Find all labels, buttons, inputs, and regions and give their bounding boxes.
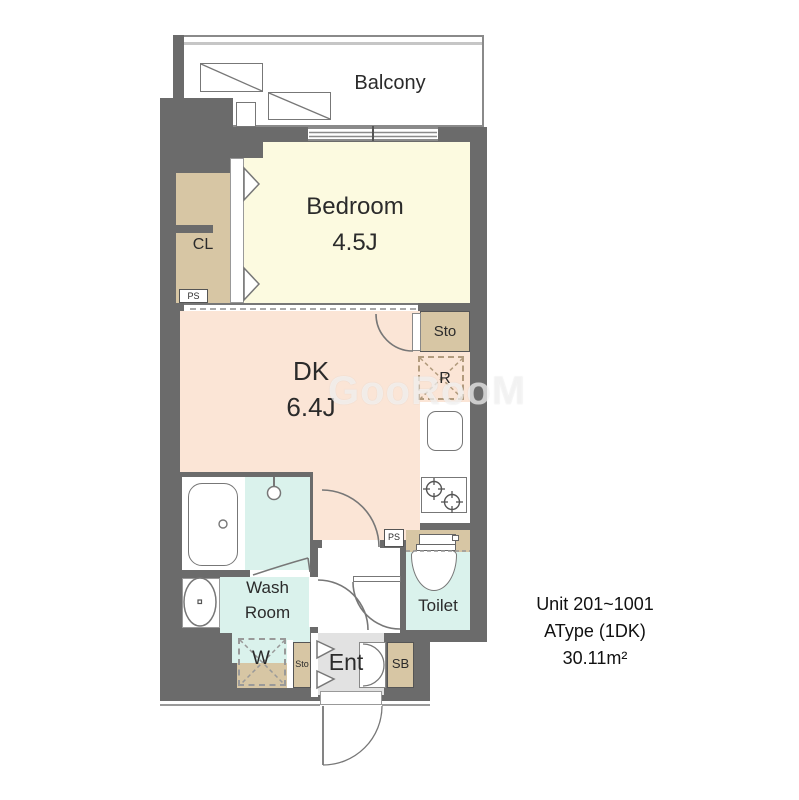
ac-unit-2 [268, 92, 331, 120]
balcony-left-wall [173, 35, 184, 98]
dk-door-opening [322, 540, 380, 548]
storage-lower-label: Sto [291, 659, 313, 669]
bath-door-opening [250, 570, 310, 577]
bedroom-area [237, 142, 470, 303]
ps-lower-label: PS [384, 532, 404, 542]
ps-upper-label: PS [179, 291, 208, 301]
outer-wall-topleft [160, 98, 233, 128]
bedroom-window [308, 127, 438, 141]
kitchen-sink [427, 411, 463, 451]
ground-line-left [160, 704, 320, 706]
partition-strip [184, 303, 418, 311]
wall-notch-bottom-right [430, 642, 487, 704]
entrance-threshold [320, 691, 382, 705]
washbasin-counter [182, 578, 220, 628]
balcony-rail-line [175, 42, 482, 45]
unit-info-line1: Unit 201~1001 [503, 591, 687, 618]
ground-line-right [382, 704, 430, 706]
washroom-label-line1: Wash [225, 578, 310, 598]
toilet-tank-lid [416, 544, 456, 551]
washroom-label-line2: Room [225, 603, 310, 623]
floor-plan: Balcony Bedroom 4.5J CL PS Sto R DK 6.4J… [0, 0, 799, 800]
washroom-door-opening [309, 577, 319, 627]
kitchen-stove [421, 477, 467, 513]
balcony-label: Balcony [330, 72, 450, 95]
unit-info: Unit 201~1001 AType (1DK) 30.11m² [503, 591, 687, 672]
toilet-label: Toilet [403, 596, 473, 616]
unit-info-line3: 30.11m² [503, 645, 687, 672]
bedroom-corner-wall [230, 142, 263, 158]
entrance-door-arc [323, 706, 382, 765]
storage-upper-label: Sto [420, 323, 470, 340]
ac-unit-1 [200, 63, 263, 92]
washer-label: W [246, 648, 276, 670]
closet-label: CL [176, 236, 230, 254]
hallway-floor [318, 548, 400, 633]
water-heater-box [236, 102, 256, 127]
toilet-tank-knob [452, 535, 459, 541]
closet-wall-stub [176, 225, 213, 233]
bedroom-size-label: 4.5J [270, 229, 440, 257]
bedroom-label: Bedroom [270, 193, 440, 221]
shoebox-label: SB [387, 657, 414, 672]
shower-area-floor [245, 477, 310, 570]
unit-info-line2: AType (1DK) [503, 618, 687, 645]
bathtub [188, 483, 238, 566]
toilet-door-leaf [353, 576, 401, 582]
entrance-label: Ent [320, 649, 372, 675]
dk-area-center [313, 311, 420, 540]
watermark: GooRooM [322, 368, 532, 414]
closet-door-strip [230, 158, 244, 303]
